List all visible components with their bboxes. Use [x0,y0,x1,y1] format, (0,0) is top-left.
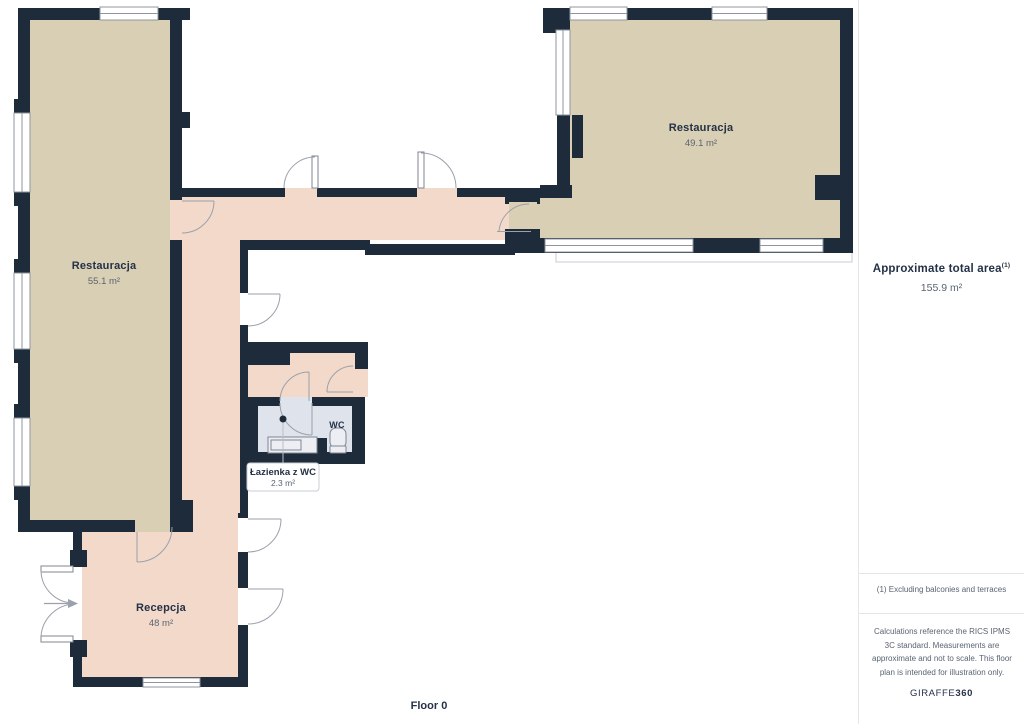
room-area-restauracja-right: 49.1 m² [685,138,717,149]
footnote-text: (1) Excluding balconies and terraces [859,585,1024,594]
disclaimer-text: Calculations reference the RICS IPMS 3C … [872,625,1012,679]
toilet-tank-icon [330,446,346,453]
floor-plan-page: Łazienka z WC 2.3 m² Restauracja Restaur… [0,0,1024,724]
panel-divider-top [859,573,1024,574]
callout-room-area: 2.3 m² [271,478,295,488]
floor-plan-drawing: Łazienka z WC 2.3 m² Restauracja Restaur… [0,0,858,724]
toilet-icon [330,428,346,448]
terrace-outline [556,253,852,262]
brand-name: GIRAFFE [910,688,955,699]
brand-logo: GIRAFFE360 [859,688,1024,699]
room-label-restauracja-left: Restauracja [72,260,137,272]
total-area-footnote-ref: (1) [1002,262,1011,269]
sink-basin-icon [271,440,301,450]
room-label-wc: WC [329,420,345,430]
room-label-recepcja: Recepcja [136,602,187,614]
leader-dot [280,416,287,423]
brand-suffix: 360 [955,688,973,699]
floor-label: Floor 0 [411,700,448,712]
total-area-value: 155.9 m² [859,282,1024,294]
room-label-restauracja-right: Restauracja [669,122,734,134]
total-area-block: Approximate total area(1) 155.9 m² [859,262,1024,294]
room-area-restauracja-left: 55.1 m² [88,276,120,287]
total-area-title: Approximate total area(1) [859,262,1024,275]
info-panel: Approximate total area(1) 155.9 m² (1) E… [858,0,1024,724]
total-area-label: Approximate total area [873,263,1002,275]
panel-divider-bottom [859,613,1024,614]
corridor-floor [170,188,513,532]
room-area-recepcja: 48 m² [149,618,173,629]
callout-room-name: Łazienka z WC [250,467,316,478]
